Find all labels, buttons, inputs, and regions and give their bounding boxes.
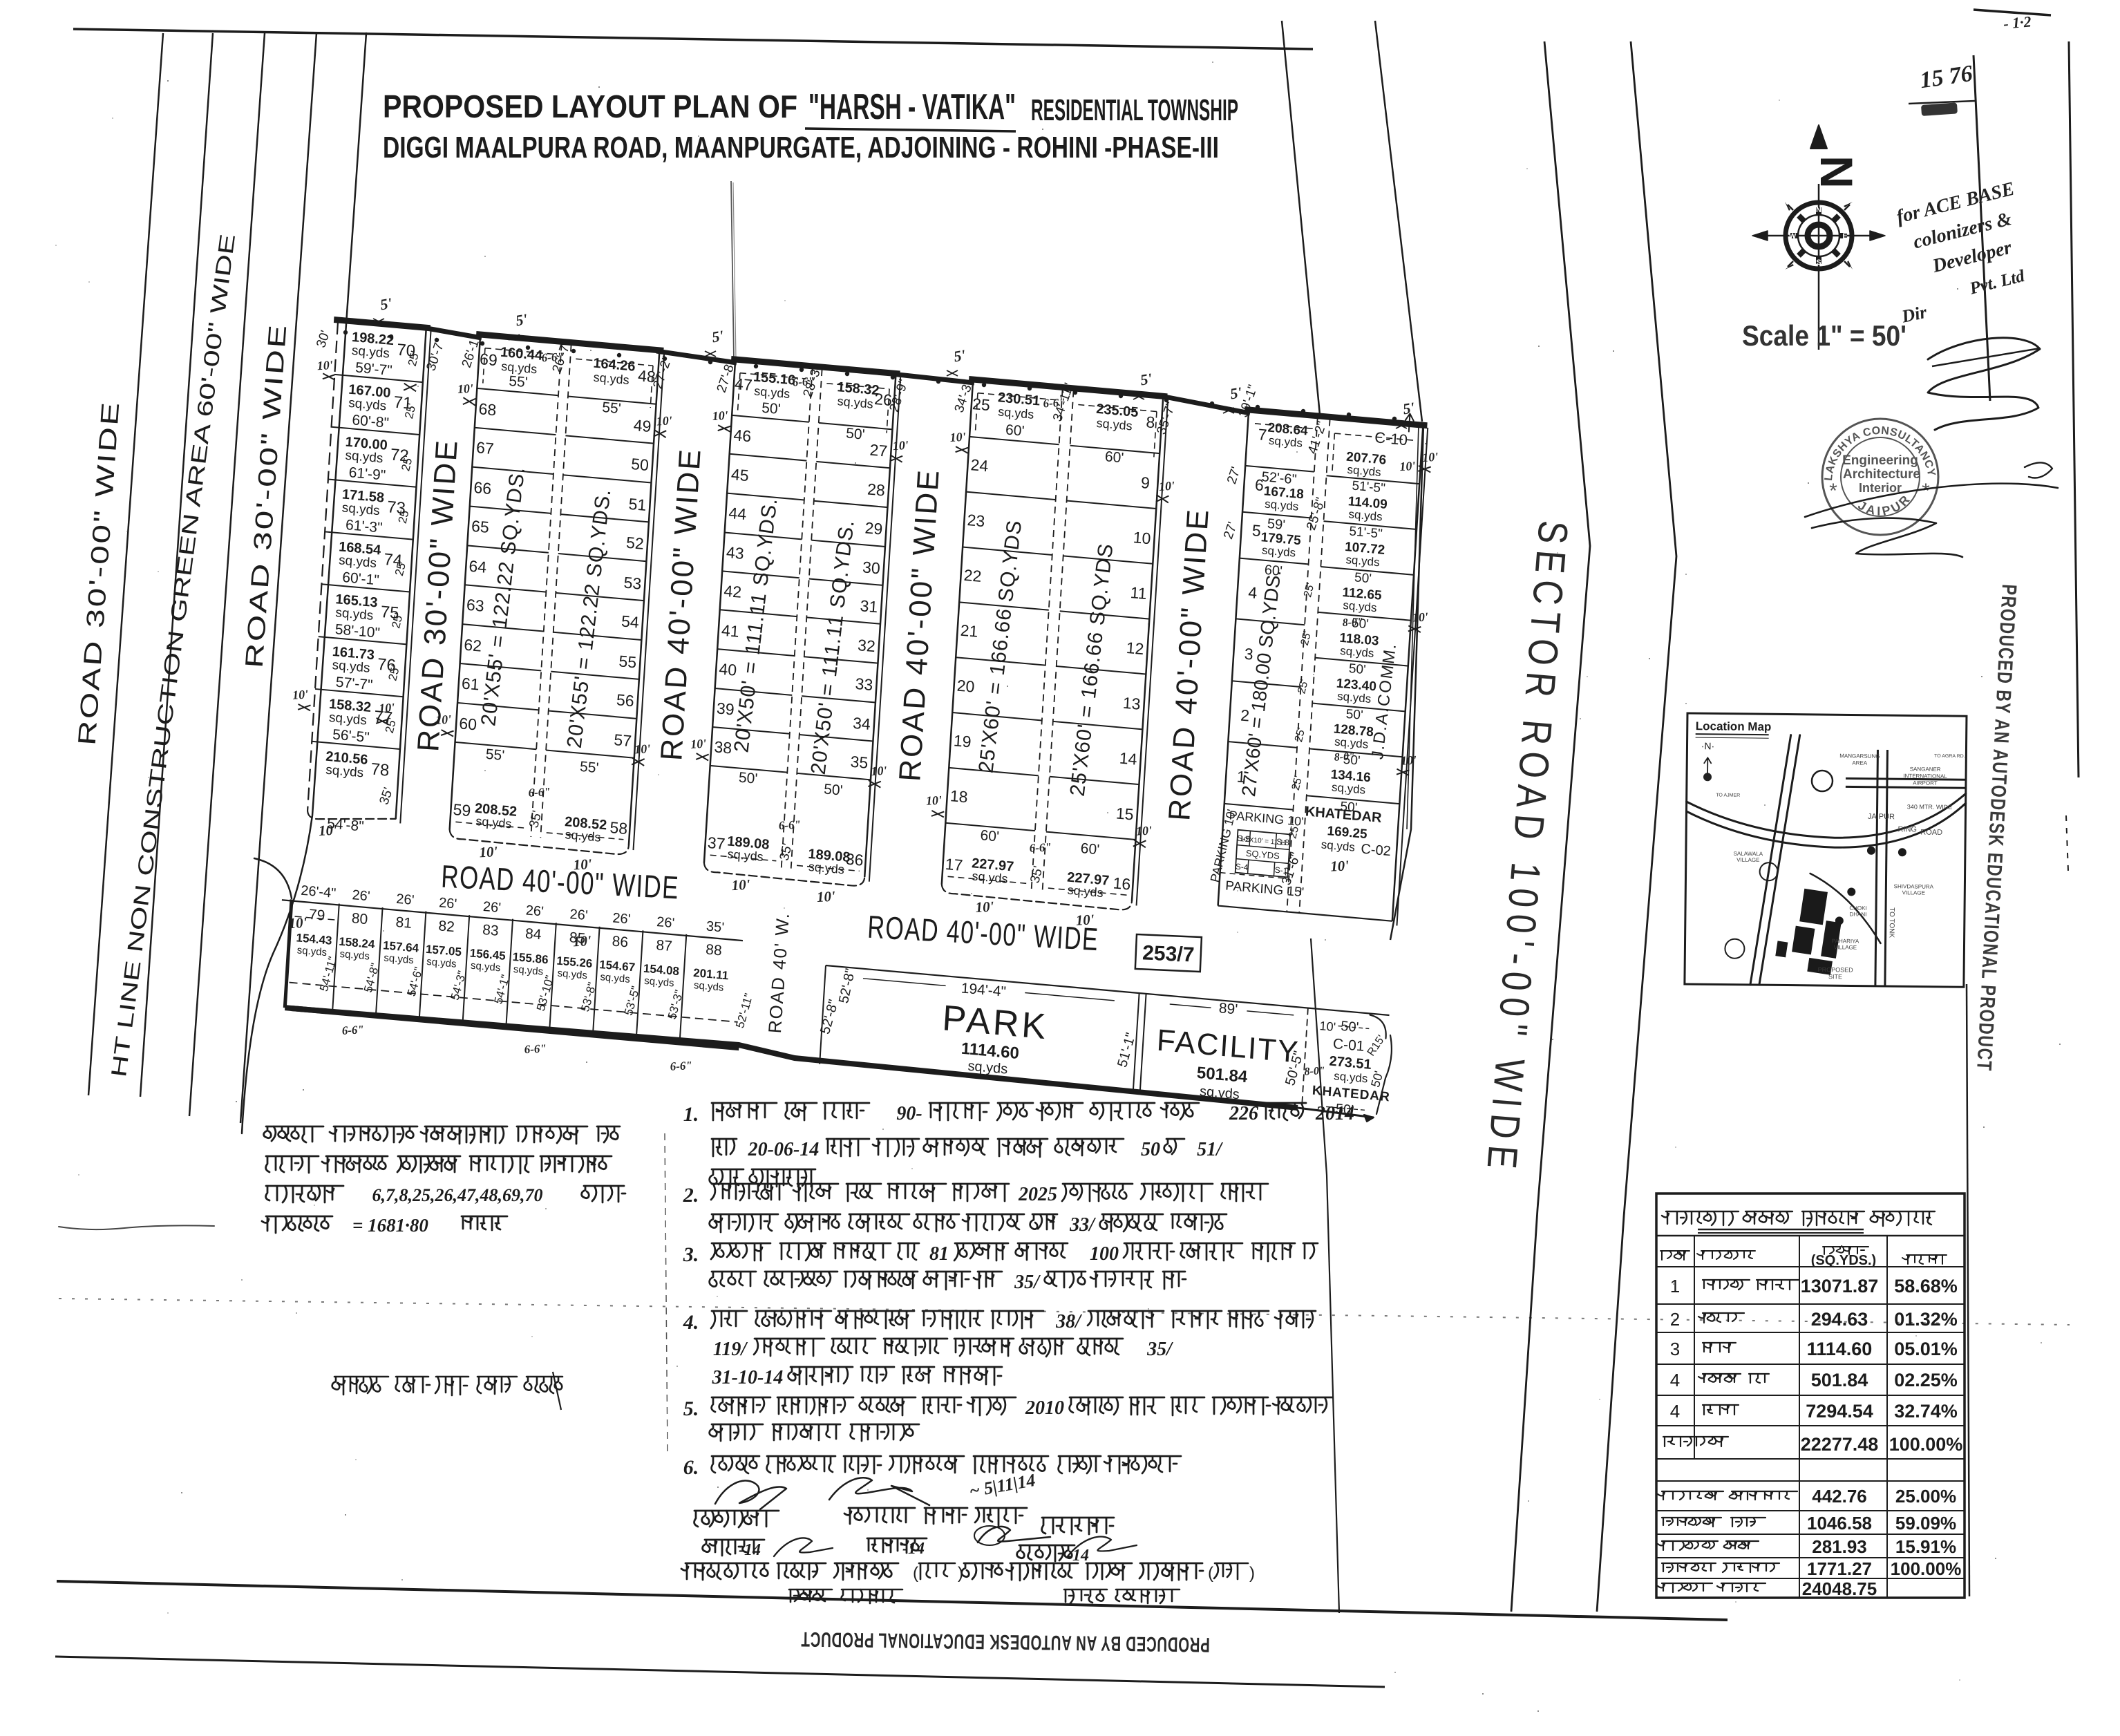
svg-text:7294.54: 7294.54 [1806,1401,1873,1422]
svg-text:38: 38 [714,737,732,757]
svg-text:13: 13 [1122,694,1141,713]
svg-text:22277.48: 22277.48 [1801,1434,1879,1455]
svg-text:40: 40 [719,660,737,679]
svg-text:2.: 2. [683,1184,699,1207]
svg-text:26': 26' [439,895,457,912]
svg-text:S-4: S-4 [1235,862,1249,873]
svg-text:31: 31 [860,596,878,616]
svg-text:50: 50 [1141,1139,1160,1160]
svg-text:5.: 5. [683,1397,699,1420]
svg-text:MANGARSUNG: MANGARSUNG [1839,753,1880,759]
svg-text:4.: 4. [683,1311,699,1334]
svg-text:37: 37 [707,833,726,853]
svg-text:63: 63 [466,596,484,615]
svg-text:83: 83 [482,922,500,939]
svg-text:"HARSH - VATIKA": "HARSH - VATIKA" [808,87,1016,127]
svg-text:8-0": 8-0" [1304,1065,1325,1078]
svg-text:50': 50' [1348,661,1366,677]
svg-text:50': 50' [761,400,782,417]
svg-text:AREA: AREA [1852,760,1868,766]
svg-text:·N·: ·N· [1701,740,1715,751]
svg-text:56'-5": 56'-5" [332,726,370,746]
svg-text:10': 10' [871,764,887,778]
svg-text:Scale 1" = 50': Scale 1" = 50' [1742,319,1906,352]
svg-text:10': 10' [690,737,707,751]
svg-text:Engineering: Engineering [1842,453,1918,468]
svg-text:26': 26' [569,907,588,923]
svg-text:Location Map: Location Map [1696,719,1772,733]
svg-text:CHOKI: CHOKI [1849,905,1866,911]
svg-text:53: 53 [623,574,642,593]
svg-text:100: 100 [1090,1243,1119,1265]
svg-text:33/: 33/ [1069,1214,1096,1236]
svg-text:PAHARIYA: PAHARIYA [1832,938,1859,944]
svg-text:59: 59 [453,800,471,820]
svg-text:45: 45 [730,465,749,484]
svg-text:6: 6 [1254,475,1264,494]
svg-text:10': 10' [457,381,473,396]
svg-text:6-6": 6-6" [778,818,801,832]
svg-text:81: 81 [929,1243,949,1265]
svg-text:20: 20 [956,677,975,696]
svg-text:79: 79 [308,907,325,924]
svg-text:29: 29 [864,518,883,538]
svg-text:294.63: 294.63 [1811,1309,1868,1330]
svg-text:51'-5": 51'-5" [1349,524,1383,541]
svg-text:25.00%: 25.00% [1895,1486,1956,1507]
svg-text:- 1·2: - 1·2 [2003,12,2032,32]
svg-text:10': 10' [816,888,836,905]
svg-text:23: 23 [967,511,985,530]
svg-text:26': 26' [656,914,675,931]
svg-text:21: 21 [960,621,978,641]
svg-text:11: 11 [1130,583,1147,603]
svg-text:10': 10' [572,932,592,950]
svg-text:TO AJMER: TO AJMER [1716,793,1740,798]
svg-text:N: N [1816,206,1821,214]
svg-text:-14: -14 [1067,1547,1089,1565]
svg-text:6-6": 6-6" [670,1059,692,1073]
svg-text:6-6": 6-6" [341,1023,364,1037]
svg-text:(SQ.YDS.): (SQ.YDS.) [1811,1253,1876,1268]
svg-text:10': 10' [1135,823,1152,838]
svg-text:27: 27 [869,441,888,460]
svg-text:10': 10' [656,413,672,428]
svg-text:*: * [1829,480,1837,502]
svg-text:281.93: 281.93 [1812,1536,1867,1557]
svg-text:57: 57 [614,730,632,750]
svg-text:3: 3 [1670,1339,1680,1359]
svg-text:25: 25 [972,395,990,414]
svg-text:SALAWALA: SALAWALA [1734,851,1763,857]
svg-text:C-10: C-10 [1374,428,1408,449]
svg-text:22: 22 [963,566,982,585]
svg-text:67: 67 [475,438,494,457]
svg-text:59.09%: 59.09% [1895,1513,1956,1534]
svg-text:49: 49 [633,416,652,435]
svg-text:60': 60' [1104,449,1124,466]
svg-text:68: 68 [478,399,497,419]
svg-text:14: 14 [1119,749,1137,768]
svg-text:80: 80 [351,910,368,927]
svg-text:10': 10' [712,408,728,423]
svg-text:55': 55' [485,746,505,764]
svg-text:9: 9 [1140,473,1150,492]
svg-text:253/7: 253/7 [1142,941,1195,966]
svg-text:S: S [1816,258,1821,267]
svg-text:20-06-14: 20-06-14 [748,1139,820,1160]
svg-text:6.: 6. [683,1456,699,1479]
svg-text:2014: 2014 [1315,1103,1354,1124]
svg-text:6-6": 6-6" [541,350,564,365]
svg-text:6,7,8,25,26,47,48,69,70: 6,7,8,25,26,47,48,69,70 [372,1185,543,1205]
svg-text:1114.60: 1114.60 [1807,1339,1873,1359]
svg-text:26': 26' [612,910,631,927]
svg-text:55': 55' [602,399,622,417]
svg-text:18: 18 [949,786,968,806]
svg-text:DIGGI MAALPURA ROAD, MAANPURGA: DIGGI MAALPURA ROAD, MAANPURGATE, ADJOIN… [383,131,1219,164]
svg-text:84: 84 [524,925,542,943]
svg-text:10: 10 [1133,528,1151,547]
svg-text:-14: -14 [739,1541,761,1559]
svg-text:10': 10' [288,914,308,932]
svg-text:61'-3": 61'-3" [345,517,383,536]
svg-text:47: 47 [734,375,753,394]
svg-text:46: 46 [733,426,752,445]
svg-text:8-0": 8-0" [1334,751,1355,764]
svg-text:55: 55 [618,652,637,671]
svg-text:= 1681·80: = 1681·80 [352,1215,428,1236]
svg-text:10': 10' [479,843,499,860]
svg-text:10': 10' [892,438,909,453]
svg-text:JAIPUR: JAIPUR [1868,813,1895,821]
svg-text:DHANI: DHANI [1849,911,1866,917]
svg-text:15: 15 [1115,804,1134,823]
svg-text:6-6": 6-6" [524,1041,547,1056]
svg-text:42: 42 [723,582,742,601]
svg-text:2: 2 [1670,1309,1680,1330]
svg-text:35': 35' [706,918,724,935]
svg-text:N: N [1811,155,1862,189]
svg-text:10': 10' [318,822,338,839]
svg-text:39: 39 [716,699,735,718]
svg-text:26': 26' [396,891,415,908]
svg-text:340 MTR. WIDE: 340 MTR. WIDE [1907,803,1953,811]
svg-text:54: 54 [621,612,639,631]
svg-text:10': 10' [1422,450,1439,464]
svg-text:50': 50' [1341,1019,1359,1035]
svg-text:VILLAGE: VILLAGE [1902,889,1925,896]
svg-text:88: 88 [706,941,723,959]
svg-text:10': 10' [1158,479,1175,493]
svg-text:PROPOSED: PROPOSED [1818,966,1854,974]
svg-text:28: 28 [867,480,885,499]
svg-text:10': 10' [925,793,942,808]
svg-text:3: 3 [1244,645,1253,663]
svg-text:1046.58: 1046.58 [1807,1513,1872,1534]
svg-text:2010: 2010 [1025,1397,1064,1419]
svg-text:41: 41 [721,621,739,641]
svg-text:55': 55' [579,759,599,776]
svg-text:69: 69 [479,350,498,369]
svg-text:8: 8 [1146,413,1155,431]
svg-text:38/: 38/ [1055,1311,1082,1332]
svg-text:32: 32 [857,636,876,655]
svg-text:2025: 2025 [1018,1184,1057,1205]
svg-text:6-6": 6-6" [792,375,815,389]
svg-text:30: 30 [862,558,880,577]
svg-text:90-: 90- [896,1103,922,1124]
svg-text:6-6": 6-6" [528,785,551,800]
svg-text:VILLAGE: VILLAGE [1736,857,1759,863]
svg-text:60'-1": 60'-1" [342,569,380,589]
svg-text:Architecture: Architecture [1843,467,1920,482]
svg-text:26'-4": 26'-4" [301,883,337,901]
svg-text:10': 10' [1319,1019,1336,1034]
svg-text:12: 12 [1126,639,1144,658]
svg-text:34: 34 [852,714,871,733]
svg-text:10': 10' [379,701,395,715]
svg-text:4: 4 [1670,1401,1680,1422]
svg-text:10': 10' [1329,857,1350,874]
svg-text:35/: 35/ [1014,1272,1041,1293]
svg-text:INTERNATIONAL: INTERNATIONAL [1903,773,1947,780]
svg-text:50: 50 [631,455,650,474]
svg-text:-14: -14 [902,1540,925,1558]
svg-text:3.: 3. [683,1243,699,1266]
svg-text:442.76: 442.76 [1812,1486,1867,1507]
svg-text:ROAD: ROAD [1920,829,1942,837]
svg-text:100.00%: 100.00% [1891,1558,1962,1579]
svg-text:119/: 119/ [713,1339,748,1360]
svg-text:61: 61 [461,674,480,693]
svg-text:81: 81 [395,914,413,932]
svg-text:24048.75: 24048.75 [1802,1578,1877,1599]
svg-text:100.00%: 100.00% [1889,1434,1963,1455]
svg-text:82: 82 [438,918,455,935]
svg-text:SHIVDASPURA: SHIVDASPURA [1894,883,1934,890]
svg-text:60': 60' [1005,422,1025,439]
svg-text:10': 10' [634,742,651,756]
svg-text:E: E [1842,232,1847,240]
svg-text:60: 60 [459,714,477,733]
svg-text:50': 50' [846,425,866,442]
svg-text:PROPOSED LAYOUT PLAN OF: PROPOSED LAYOUT PLAN OF [383,88,797,124]
svg-text:86: 86 [612,933,629,950]
svg-text:51/: 51/ [1197,1139,1223,1160]
svg-text:4: 4 [1670,1370,1680,1390]
svg-text:51'-5": 51'-5" [1352,479,1386,496]
svg-text:65: 65 [471,517,489,536]
svg-text:15.91%: 15.91% [1895,1536,1956,1557]
svg-text:1771.27: 1771.27 [1807,1558,1872,1579]
svg-text:32.74%: 32.74% [1894,1401,1958,1422]
svg-text:4: 4 [1248,583,1258,602]
svg-text:(: ( [913,1564,918,1583]
svg-text:SITE: SITE [1828,973,1842,980]
svg-text:10': 10' [731,876,751,894]
svg-text:SANGANER: SANGANER [1910,766,1941,772]
svg-text:66: 66 [473,478,492,498]
svg-text:6-6": 6-6" [1043,396,1066,411]
svg-text:10': 10' [975,898,995,915]
svg-text:51: 51 [628,495,647,514]
svg-text:62: 62 [464,636,482,655]
svg-text:C-01: C-01 [1332,1036,1365,1055]
svg-text:VILLAGE: VILLAGE [1834,944,1857,950]
svg-text:10': 10' [949,430,966,444]
svg-text:C-02: C-02 [1361,842,1392,860]
svg-text:35/: 35/ [1146,1339,1173,1360]
svg-text:*: * [1922,480,1930,502]
svg-text:52: 52 [625,534,644,553]
svg-text:1: 1 [1670,1276,1680,1296]
svg-text:10': 10' [1412,610,1428,624]
svg-text:W: W [1789,232,1797,240]
svg-text:50': 50' [1345,707,1363,723]
svg-text:64: 64 [469,557,487,576]
svg-text:TO TONK: TO TONK [1888,907,1895,938]
svg-text:501.84: 501.84 [1811,1370,1868,1390]
svg-text:10': 10' [316,358,333,372]
svg-text:10': 10' [1399,459,1416,473]
svg-text:): ) [1249,1564,1255,1583]
svg-text:16: 16 [1113,874,1131,893]
svg-text:26': 26' [482,899,501,916]
svg-text:56: 56 [616,690,634,710]
svg-text:59'-7": 59'-7" [355,359,393,379]
svg-text:10': 10' [292,688,308,702]
svg-text:58: 58 [609,818,628,838]
svg-text:89': 89' [1218,1000,1238,1017]
svg-text:7: 7 [1258,425,1267,444]
svg-text:43: 43 [726,543,744,563]
svg-text:5: 5 [1251,521,1261,540]
svg-text:31-10-14: 31-10-14 [712,1367,784,1388]
svg-text:60': 60' [1080,840,1100,858]
svg-text:26': 26' [525,903,544,919]
svg-text:01.32%: 01.32% [1894,1309,1958,1330]
svg-text:19: 19 [953,731,972,751]
svg-text:05.01%: 05.01% [1894,1339,1958,1359]
svg-text:60': 60' [980,827,1000,845]
svg-text:17: 17 [945,855,963,874]
svg-text:50': 50' [1354,570,1372,586]
svg-text:60'-8": 60'-8" [352,412,390,431]
svg-text:RESIDENTIAL TOWNSHIP: RESIDENTIAL TOWNSHIP [1031,93,1238,127]
svg-text:33: 33 [855,674,873,694]
svg-text:13071.87: 13071.87 [1801,1276,1879,1296]
svg-text:226: 226 [1229,1103,1258,1124]
svg-text:55': 55' [509,373,529,390]
svg-text:61'-9": 61'-9" [348,464,386,484]
svg-text:(: ( [1208,1564,1213,1583]
svg-text:58.68%: 58.68% [1894,1276,1958,1296]
svg-text:TO AGRA RD.: TO AGRA RD. [1934,754,1965,759]
svg-text:44: 44 [728,504,747,523]
svg-text:1.: 1. [683,1103,699,1126]
svg-text:RING: RING [1897,825,1917,833]
svg-text:Interior: Interior [1859,481,1902,495]
svg-text:50': 50' [824,781,844,798]
svg-text:50': 50' [738,770,758,787]
svg-text:35: 35 [850,753,869,772]
svg-text:87: 87 [656,937,673,954]
svg-text:AIRPORT: AIRPORT [1913,780,1938,786]
svg-text:57'-7": 57'-7" [335,674,373,694]
svg-text:24: 24 [970,455,989,475]
svg-text:6-6": 6-6" [1029,840,1052,855]
svg-text:8-0": 8-0" [1342,616,1363,630]
svg-text:26': 26' [352,887,370,904]
svg-text:78: 78 [370,759,390,780]
svg-text:02.25%: 02.25% [1894,1370,1958,1390]
